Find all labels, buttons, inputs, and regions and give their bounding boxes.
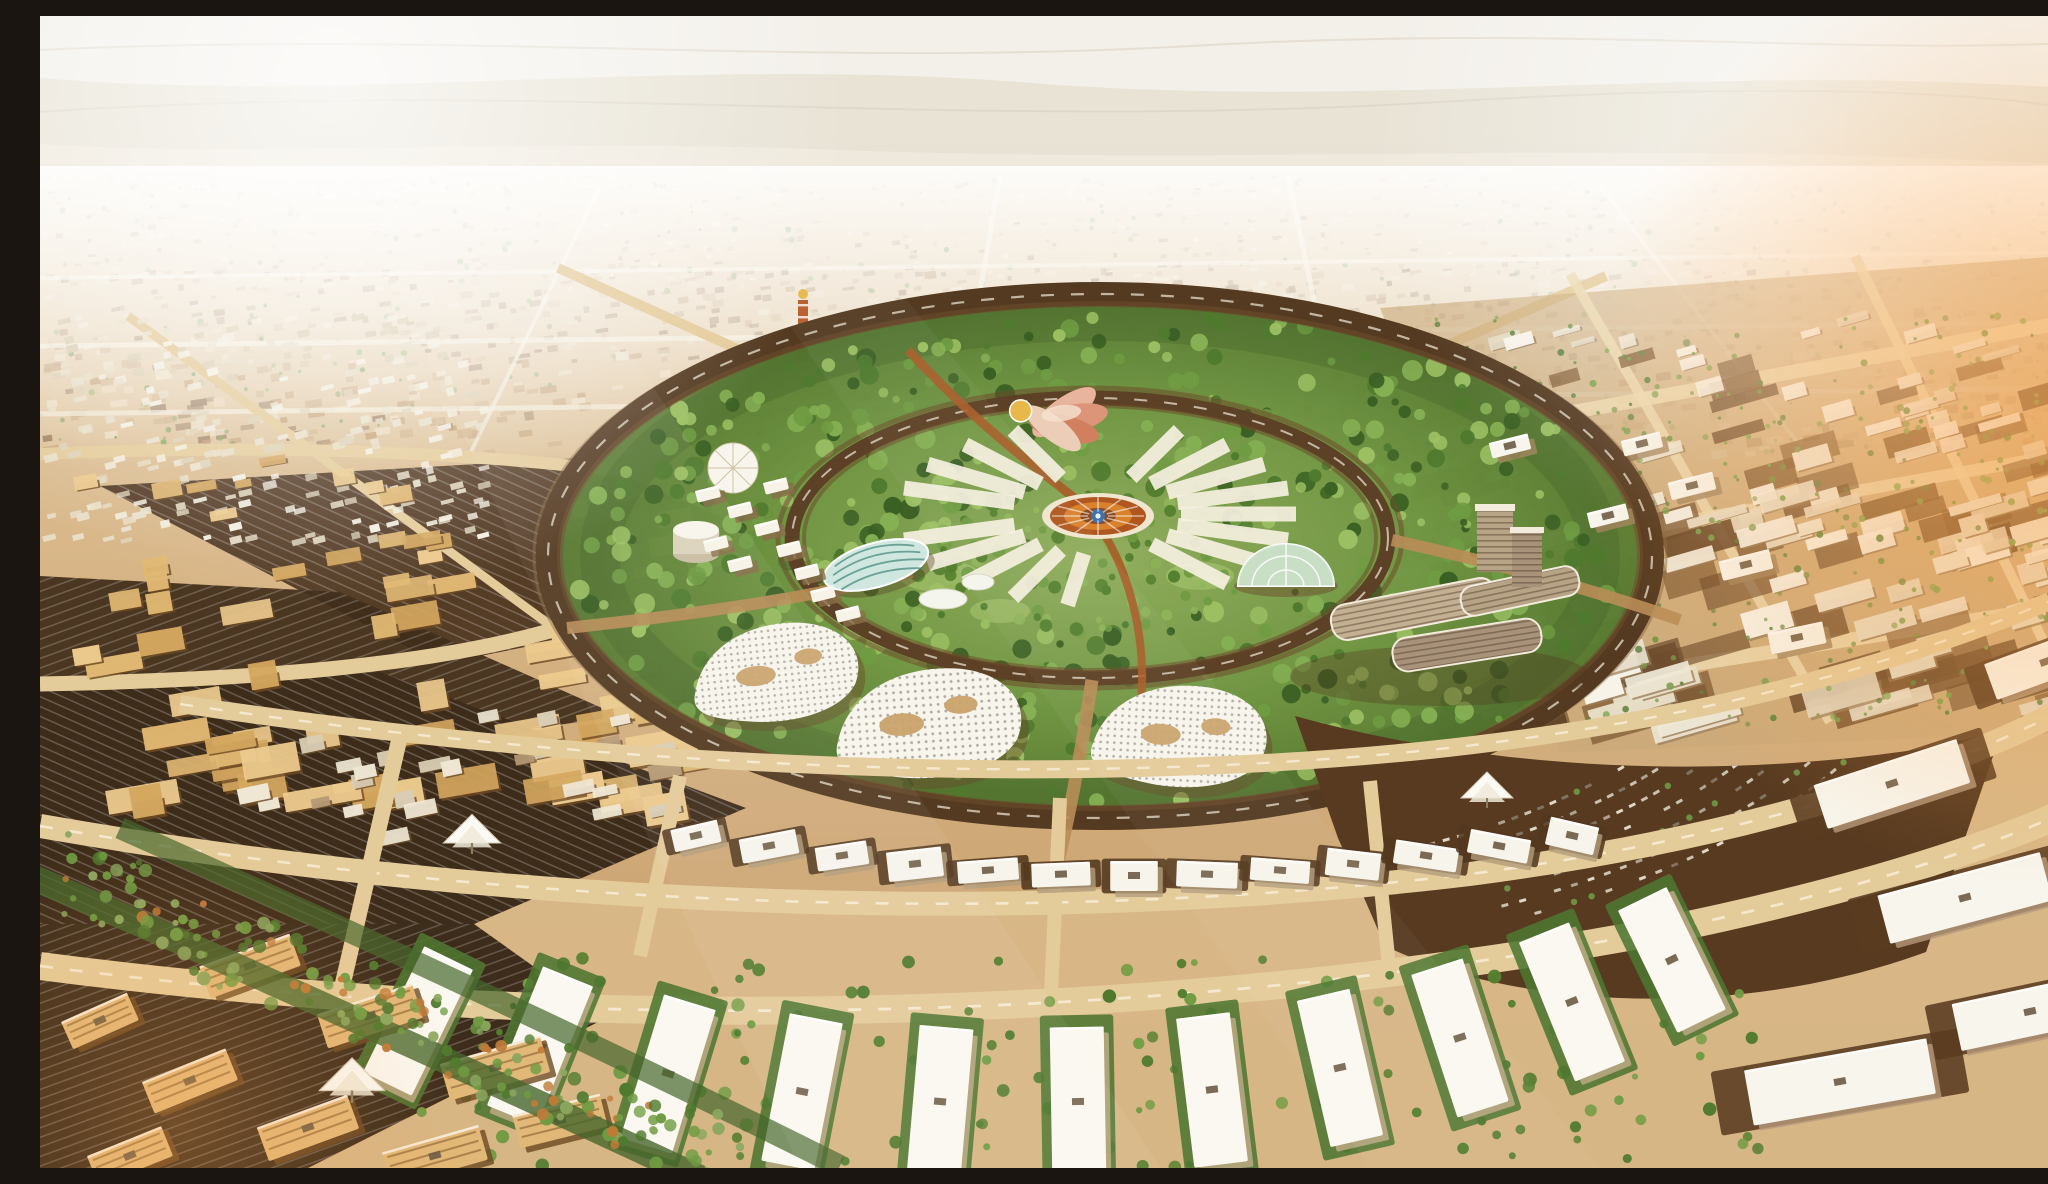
park-pond-small [962, 574, 994, 590]
aerial-rendering-canvas [40, 16, 2048, 1168]
park-pond [919, 589, 967, 609]
city-aerial-rendering [40, 16, 2048, 1168]
